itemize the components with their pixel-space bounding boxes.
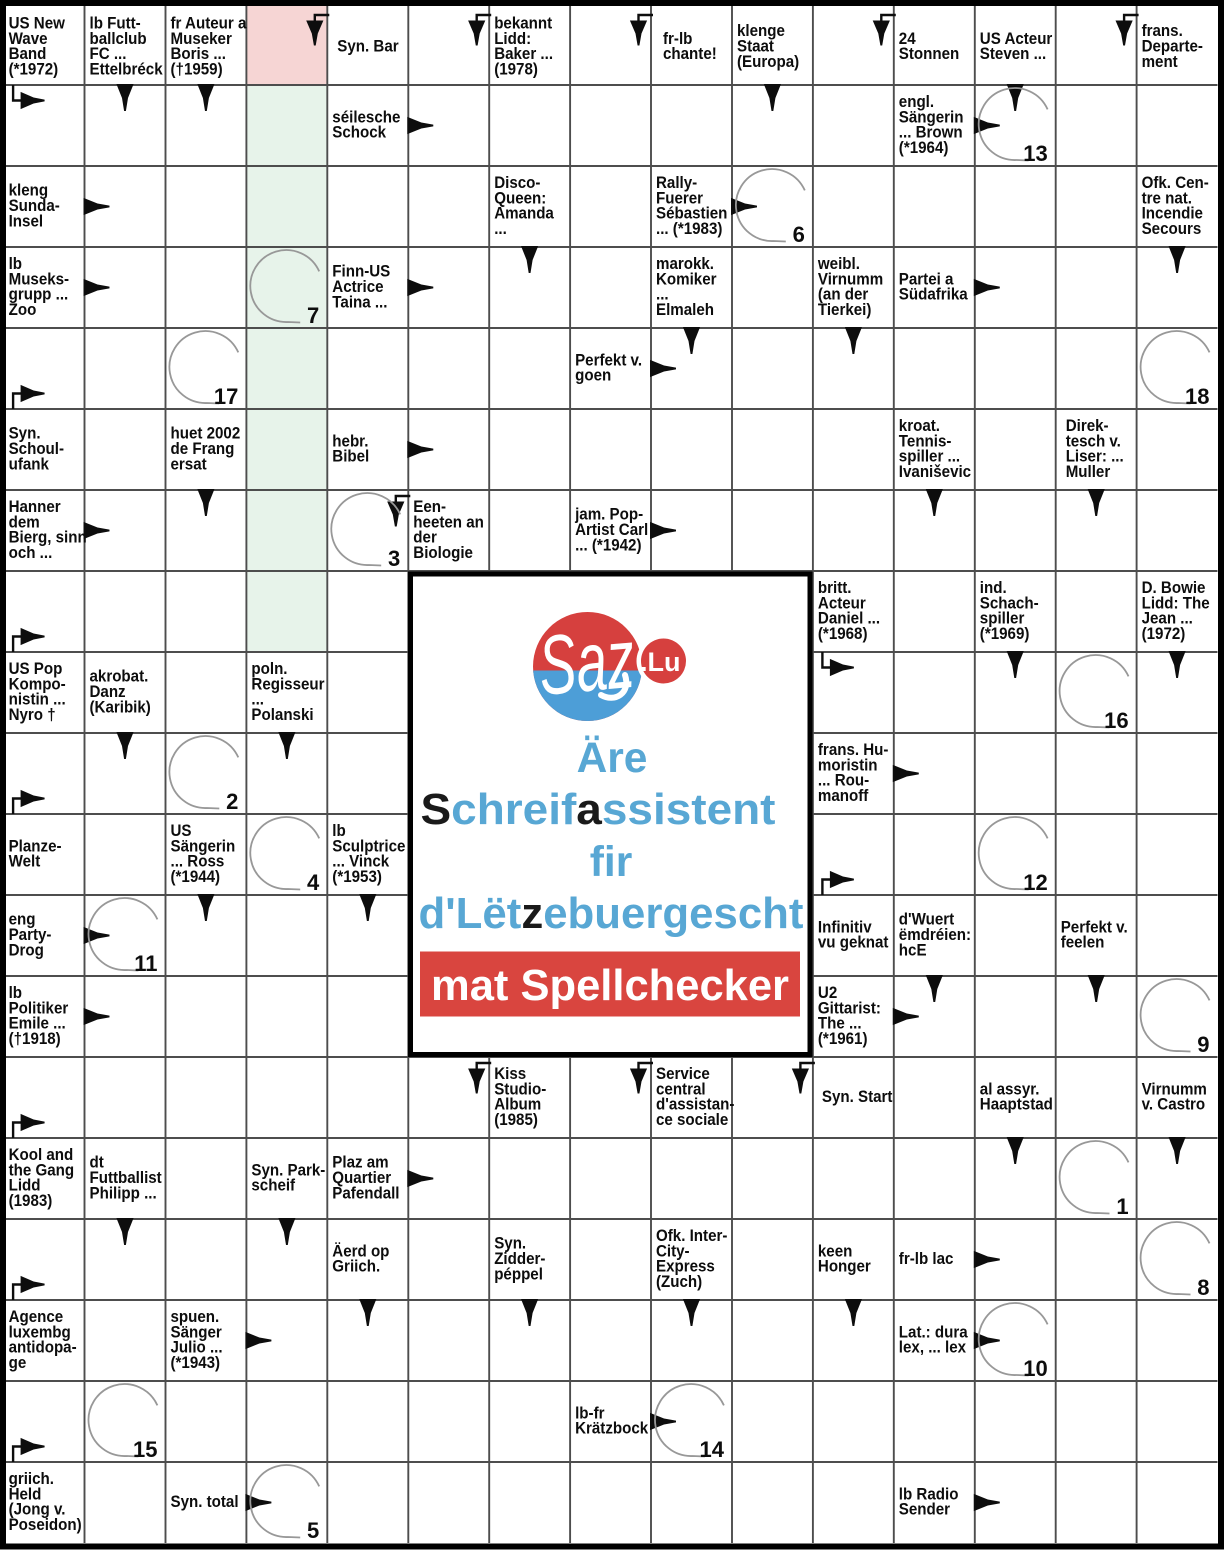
svg-text:Ofk. Cen-tre nat.IncendieSecou: Ofk. Cen-tre nat.IncendieSecours	[1142, 173, 1209, 238]
svg-text:16: 16	[1104, 708, 1128, 733]
svg-text:1: 1	[1116, 1194, 1128, 1219]
svg-text:14: 14	[700, 1437, 725, 1462]
svg-text:Finn-USActriceTaina ...: Finn-USActriceTaina ...	[332, 262, 390, 312]
svg-text:jam. Pop-Artist Carl... (*1942: jam. Pop-Artist Carl... (*1942)	[574, 505, 648, 555]
svg-text:Lat.: duralex, ... lex: Lat.: duralex, ... lex	[899, 1323, 969, 1357]
svg-text:d'Lëtzebuergescht: d'Lëtzebuergescht	[419, 889, 804, 938]
svg-text:Saz: Saz	[535, 612, 638, 713]
svg-text:15: 15	[133, 1437, 157, 1462]
svg-text:fir: fir	[590, 839, 633, 886]
svg-text:17: 17	[214, 384, 238, 409]
svg-text:11: 11	[134, 951, 157, 976]
svg-text:10: 10	[1023, 1356, 1047, 1381]
svg-text:18: 18	[1185, 384, 1209, 409]
svg-text:US ActeurSteven ...: US ActeurSteven ...	[980, 29, 1053, 63]
svg-text:lb RadioSender: lb RadioSender	[899, 1485, 959, 1519]
svg-text:Schreifassistent: Schreifassistent	[421, 785, 776, 834]
svg-text:spuen.SängerJulio ...(*1943): spuen.SängerJulio ...(*1943)	[171, 1307, 223, 1372]
svg-text:8: 8	[1197, 1275, 1209, 1300]
svg-text:4: 4	[307, 870, 320, 895]
svg-text:Syn. Start: Syn. Start	[822, 1087, 893, 1106]
svg-text:12: 12	[1023, 870, 1047, 895]
svg-text:9: 9	[1197, 1032, 1209, 1057]
svg-text:.Lu: .Lu	[640, 647, 681, 677]
svg-text:Äre: Äre	[577, 735, 648, 782]
svg-text:6: 6	[793, 222, 805, 247]
svg-text:mat Spellchecker: mat Spellchecker	[431, 962, 789, 1010]
svg-text:13: 13	[1023, 141, 1047, 166]
svg-text:Virnummv. Castro: Virnummv. Castro	[1142, 1080, 1207, 1114]
svg-text:7: 7	[307, 303, 319, 328]
svg-text:5: 5	[307, 1518, 319, 1543]
svg-text:3: 3	[388, 546, 400, 571]
svg-text:hebr.Bibel: hebr.Bibel	[332, 432, 369, 466]
svg-text:2: 2	[226, 789, 238, 814]
svg-text:marokk.Komiker...Elmaleh: marokk.Komiker...Elmaleh	[656, 254, 717, 319]
svg-text:Syn. total: Syn. total	[171, 1492, 239, 1511]
svg-text:fr-lb lac: fr-lb lac	[899, 1249, 954, 1268]
svg-text:Syn. Bar: Syn. Bar	[337, 37, 399, 56]
